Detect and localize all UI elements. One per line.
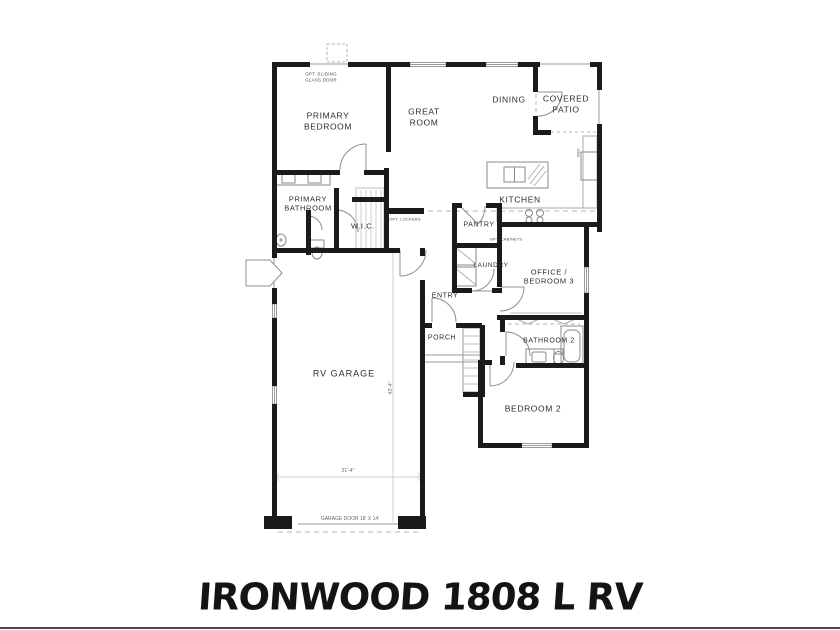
wall <box>452 203 457 248</box>
room-label-kitchen: KITCHEN <box>499 195 541 206</box>
wall <box>272 318 277 386</box>
wall <box>386 208 424 214</box>
wall <box>334 188 339 250</box>
wall <box>272 62 277 258</box>
wall <box>352 197 386 202</box>
room-label-covered-patio: COVERED PATIO <box>543 93 589 114</box>
room-label-pantry: PANTRY <box>463 222 494 231</box>
room-label-laundry: LAUNDRY <box>473 262 508 270</box>
wall <box>597 124 602 232</box>
room-label-wic: W.I.C. <box>351 221 375 230</box>
bottom-divider <box>0 627 840 629</box>
wall <box>497 203 502 287</box>
wall <box>420 280 425 328</box>
room-label-primary-bedroom: PRIMARY BEDROOM <box>304 110 352 131</box>
wall <box>584 225 589 267</box>
annotation-garage-door: GARAGE DOOR 18' X 14' <box>321 516 379 522</box>
room-label-entry: ENTRY <box>432 293 459 302</box>
annotation-opt-sliding-glass-door: OPT. SLIDING GLASS DOOR <box>305 71 337 82</box>
wall <box>463 392 485 397</box>
wall <box>478 443 522 448</box>
wall <box>478 360 492 365</box>
wall <box>306 210 311 255</box>
wall <box>552 443 589 448</box>
dimension-garage-width: 21'-4" <box>342 468 355 474</box>
room-label-bedroom2: BEDROOM 2 <box>505 404 561 415</box>
wall <box>452 243 457 293</box>
wall <box>452 243 500 248</box>
wall <box>420 248 425 256</box>
wall <box>420 328 425 525</box>
room-label-porch: PORCH <box>428 335 456 344</box>
wall <box>500 320 505 332</box>
room-label-dining: DINING <box>492 95 525 106</box>
room-label-office-bedroom3: OFFICE / BEDROOM 3 <box>524 268 574 287</box>
annotation-opt-cabinets: OPT. CABINETS <box>490 237 523 242</box>
wall <box>497 315 584 320</box>
wall <box>446 62 486 67</box>
wall <box>492 288 502 293</box>
dimension-garage-depth: 43'-4" <box>388 382 394 395</box>
plan-title: IRONWOOD 1808 L RV <box>197 576 643 619</box>
wall <box>516 363 584 368</box>
room-label-great-room: GREAT ROOM <box>408 106 440 127</box>
wall <box>597 62 602 90</box>
room-label-bathroom2: BATHROOM 2 <box>523 338 575 347</box>
wall <box>386 62 391 152</box>
wall <box>272 404 277 525</box>
wall <box>348 62 410 67</box>
wall <box>272 62 310 67</box>
room-label-primary-bathroom: PRIMARY BATHROOM <box>284 195 332 214</box>
wall <box>272 288 277 304</box>
annotation-opt-lockers: OPT. LOCKERS <box>389 217 421 222</box>
wall <box>420 323 432 328</box>
wall <box>500 356 505 365</box>
wall <box>272 170 340 175</box>
wall <box>584 293 589 448</box>
room-label-rv-garage: RV GARAGE <box>313 368 375 379</box>
annotation-ref: REF. <box>576 147 581 156</box>
wall <box>533 130 551 135</box>
wall <box>398 516 426 529</box>
wall <box>456 323 482 328</box>
wall <box>533 64 538 92</box>
floor-plan-sheet: PRIMARY BEDROOM GREAT ROOM DINING COVERE… <box>0 0 840 630</box>
kitchen-fixtures <box>487 136 598 223</box>
wall <box>264 516 292 529</box>
